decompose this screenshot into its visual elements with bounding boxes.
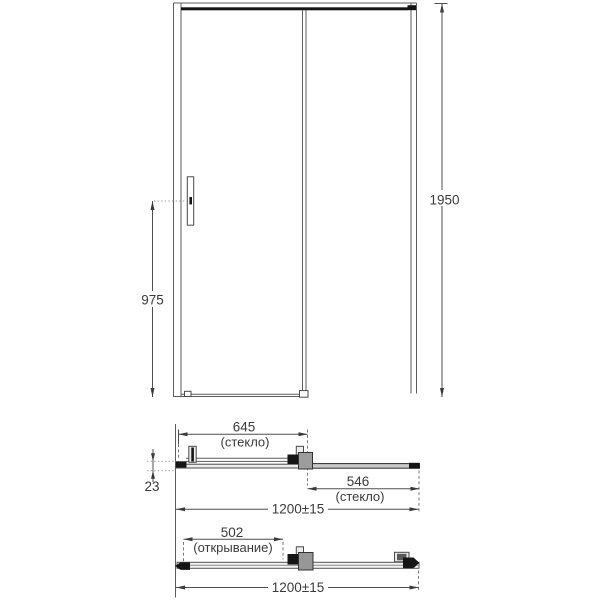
arrow-down-icon [440, 388, 444, 397]
bottom-guide-center [300, 391, 309, 398]
fixed-glass-width-label: 546 [347, 474, 370, 489]
overall-height-label: 1950 [429, 193, 459, 208]
bottom-rail-section-view: 502 (открывание) 1200±15 [175, 525, 419, 595]
bottom-guide-left [185, 391, 192, 396]
arrow-up-icon [151, 471, 155, 479]
dimension-handle-height: 975 [140, 201, 166, 397]
rail-end-cap [409, 463, 420, 469]
center-carriage [299, 453, 313, 470]
arrow-left-icon [184, 537, 193, 541]
arrow-right-icon [410, 507, 419, 511]
arrow-right-icon [410, 586, 419, 590]
door-handle-grip [189, 197, 192, 204]
dimension-overall-width-bottom: 1200±15 [176, 571, 419, 596]
technical-drawing-canvas: 975 1950 645 (стекло) [0, 0, 600, 600]
top-rail-profile [176, 446, 420, 469]
overall-width-bottom-label: 1200±15 [272, 580, 324, 595]
shower-door-drawing: 975 1950 645 (стекло) [0, 0, 600, 600]
left-roller-pin [191, 448, 194, 462]
dimension-overall-height: 1950 [428, 4, 460, 398]
dimension-opening-width: 502 (открывание) [184, 525, 284, 562]
arrow-left-icon [308, 487, 317, 491]
profile-depth-label: 23 [144, 479, 159, 494]
dimension-profile-depth: 23 [144, 449, 176, 494]
overall-width-top-label: 1200±15 [272, 502, 324, 517]
arrow-left-icon [179, 432, 188, 436]
arrow-up-icon [440, 4, 444, 13]
opening-width-label: 502 [221, 525, 244, 540]
arrow-down-icon [151, 453, 155, 461]
arrow-right-icon [299, 432, 308, 436]
opening-note-label: (открывание) [193, 540, 272, 555]
dimension-sliding-glass: 645 (стекло) [179, 420, 308, 486]
sliding-glass-width-label: 645 [233, 420, 256, 435]
arrow-left-icon [176, 507, 185, 511]
arrow-left-icon [176, 586, 185, 590]
fixed-glass-note-label: (стекло) [336, 489, 385, 504]
fixed-glass-panel [305, 464, 420, 469]
top-rail-section-view: 645 (стекло) 23 [144, 420, 419, 598]
wall-profile-clamp [176, 461, 187, 467]
arrow-up-icon [151, 201, 155, 210]
handle-height-label: 975 [141, 293, 164, 308]
arrow-right-icon [411, 487, 420, 491]
top-rail-bar [181, 7, 408, 10]
center-carriage [299, 553, 314, 571]
top-rail-end-block [408, 5, 417, 10]
front-elevation-view [154, 3, 417, 397]
arrow-right-icon [274, 537, 283, 541]
sliding-glass-note-label: (стекло) [221, 435, 270, 450]
arrow-down-icon [151, 388, 155, 397]
